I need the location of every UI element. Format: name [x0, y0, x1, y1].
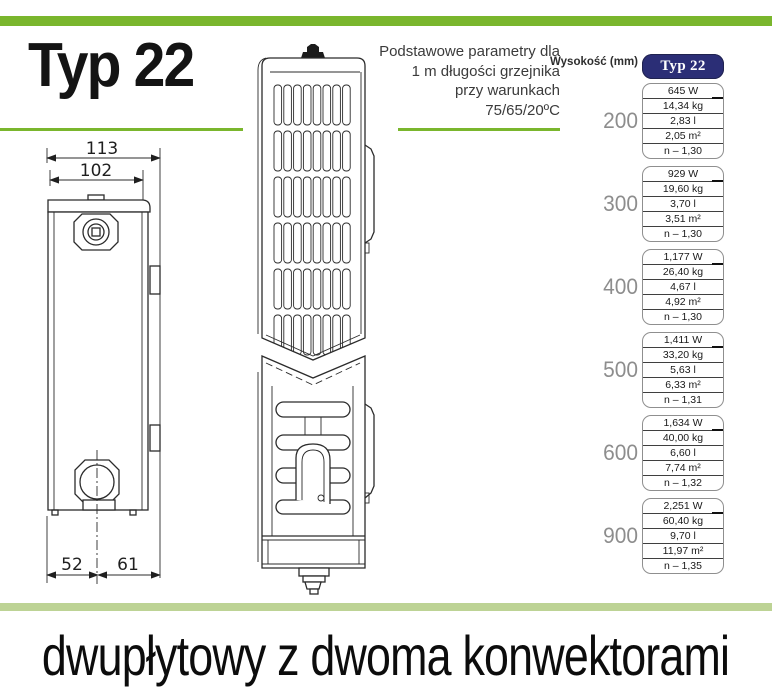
catalog-page: Typ 22 Podstawowe parametry dla1 m długo…: [0, 0, 772, 699]
wall-bracket-lower: [150, 425, 160, 451]
table-value-group: 645 W14,34 kg2,83 l2,05 m²n – 1,30: [642, 83, 724, 159]
drain-valve-icon: [299, 568, 329, 594]
table-value-cell: 9,70 l: [643, 528, 723, 543]
dim-102: 102: [80, 161, 112, 181]
table-height-label: 500: [572, 357, 639, 383]
table-value-group: 1,177 W26,40 kg4,67 l4,92 m²n – 1,30: [642, 249, 724, 325]
table-value-cell: 14,34 kg: [643, 98, 723, 113]
table-value-cell: 1,634 W: [643, 416, 723, 430]
table-value-cell: 11,97 m²: [643, 543, 723, 558]
table-value-cell: 6,60 l: [643, 445, 723, 460]
table-value-group: 929 W19,60 kg3,70 l3,51 m²n – 1,30: [642, 166, 724, 242]
top-cap: [48, 200, 150, 212]
table-value-cell: n – 1,30: [643, 309, 723, 324]
table-value-cell: 4,67 l: [643, 279, 723, 294]
dim-52: 52: [61, 555, 83, 575]
table-value-group: 1,634 W40,00 kg6,60 l7,74 m²n – 1,32: [642, 415, 724, 491]
radiator-side-view-drawing: 113 102 52 61: [36, 142, 168, 592]
title-underline: [0, 128, 243, 131]
dim-61: 61: [117, 555, 139, 575]
table-height-label: 400: [572, 274, 639, 300]
table-value-cell: 7,74 m²: [643, 460, 723, 475]
table-value-cell: 3,51 m²: [643, 211, 723, 226]
table-value-cell: 33,20 kg: [643, 347, 723, 362]
air-vent-icon: [301, 44, 325, 58]
table-value-cell: 3,70 l: [643, 196, 723, 211]
radiator-front-view-drawing: [233, 38, 385, 598]
bottom-accent-band: [0, 603, 772, 611]
params-note-line: 1 m długości grzejnika: [379, 62, 560, 82]
table-value-cell: n – 1,31: [643, 392, 723, 407]
table-value-group: 1,411 W33,20 kg5,63 l6,33 m²n – 1,31: [642, 332, 724, 408]
top-accent-bar: [0, 16, 772, 26]
table-height-label: 300: [572, 191, 639, 217]
table-value-cell: 1,177 W: [643, 250, 723, 264]
note-underline: [398, 128, 560, 131]
table-value-cell: 929 W: [643, 167, 723, 181]
table-height-header: Wysokość (mm): [550, 56, 638, 68]
table-value-cell: n – 1,30: [643, 143, 723, 158]
table-value-cell: 2,83 l: [643, 113, 723, 128]
table-value-cell: n – 1,32: [643, 475, 723, 490]
table-value-cell: 19,60 kg: [643, 181, 723, 196]
table-value-cell: 60,40 kg: [643, 513, 723, 528]
table-value-cell: 1,411 W: [643, 333, 723, 347]
table-height-label: 600: [572, 440, 639, 466]
table-value-cell: 5,63 l: [643, 362, 723, 377]
table-column-header: Typ 22: [642, 54, 724, 79]
parameters-note: Podstawowe parametry dla1 m długości grz…: [379, 42, 560, 120]
wall-bracket-upper: [365, 145, 374, 253]
table-value-cell: 40,00 kg: [643, 430, 723, 445]
top-nub: [88, 195, 104, 200]
table-value-group: 2,251 W60,40 kg9,70 l11,97 m²n – 1,35: [642, 498, 724, 574]
params-note-line: przy warunkach: [379, 81, 560, 101]
thermostatic-valve-icon: [74, 214, 118, 250]
params-note-line: 75/65/20ºC: [379, 101, 560, 121]
table-value-cell: 6,33 m²: [643, 377, 723, 392]
table-value-cell: 26,40 kg: [643, 264, 723, 279]
table-value-cell: 2,05 m²: [643, 128, 723, 143]
wall-bracket-upper: [150, 266, 160, 294]
caption-row: dwupłytowy z dwoma konwektorami: [0, 611, 772, 699]
page-title: Typ 22: [28, 30, 193, 101]
params-note-line: Podstawowe parametry dla: [379, 42, 560, 62]
dim-113: 113: [86, 139, 118, 159]
table-value-cell: 4,92 m²: [643, 294, 723, 309]
table-value-cell: 2,251 W: [643, 499, 723, 513]
table-value-cell: n – 1,30: [643, 226, 723, 241]
table-height-label: 900: [572, 523, 639, 549]
wall-bracket-lower: [365, 404, 374, 503]
table-value-cell: n – 1,35: [643, 558, 723, 573]
table-value-cell: 645 W: [643, 84, 723, 98]
radiator-type-caption: dwupłytowy z dwoma konwektorami: [42, 623, 729, 688]
table-height-label: 200: [572, 108, 639, 134]
